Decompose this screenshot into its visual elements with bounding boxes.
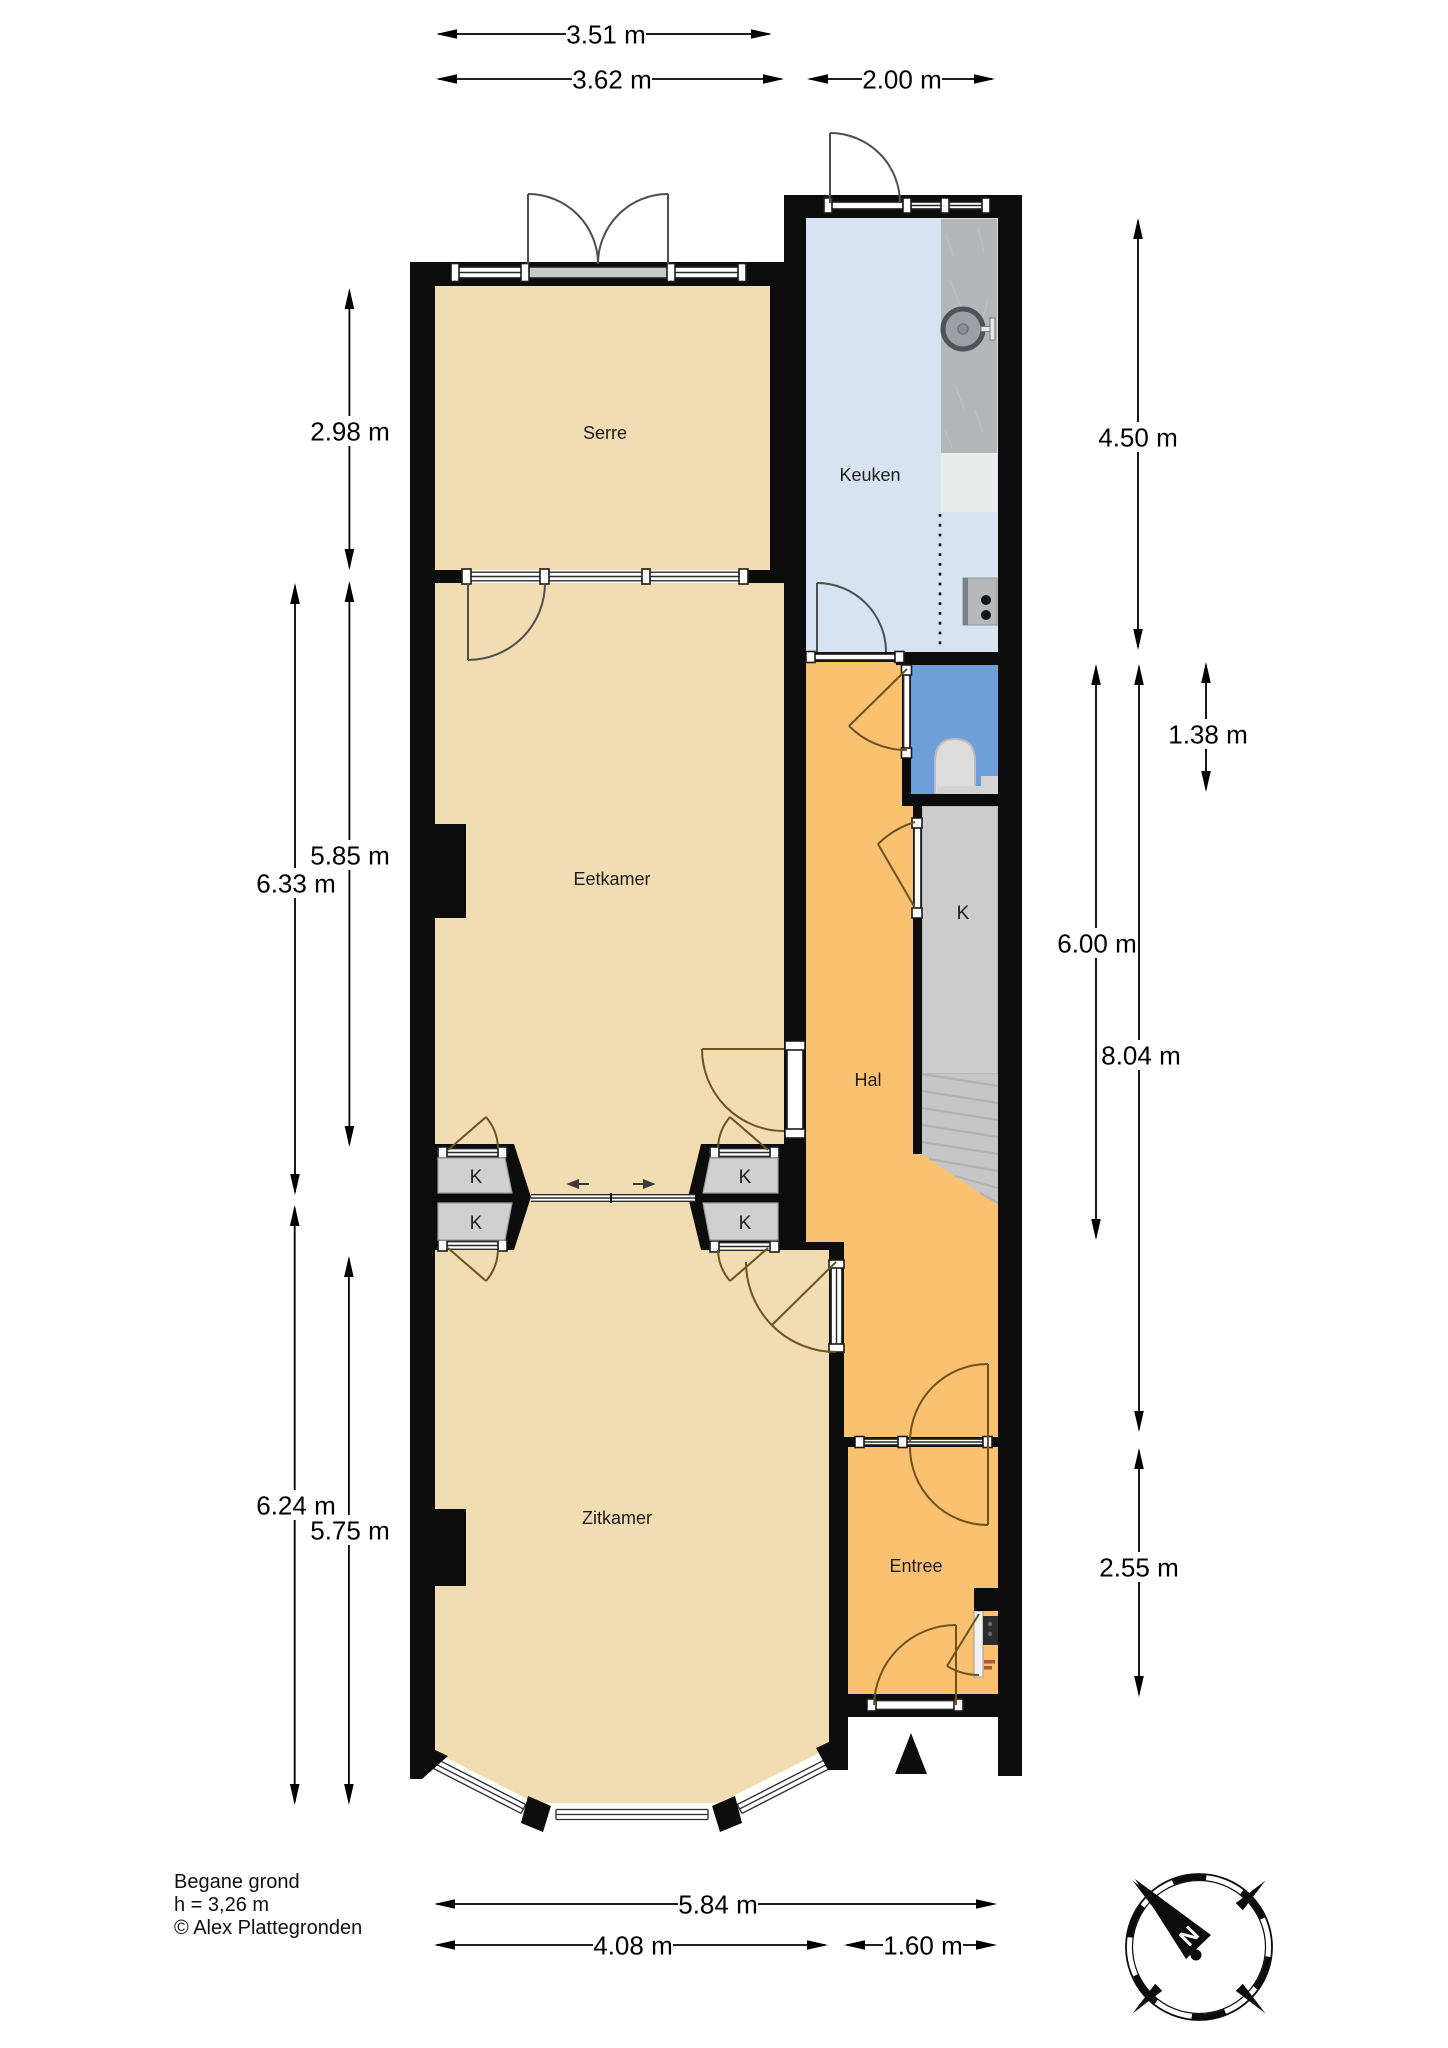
svg-text:h = 3,26 m: h = 3,26 m [174,1894,269,1916]
svg-text:Serre: Serre [583,423,627,443]
svg-text:Hal: Hal [854,1070,881,1090]
svg-text:K: K [470,1213,483,1234]
svg-text:6.33 m: 6.33 m [256,869,336,899]
svg-text:3.51 m: 3.51 m [566,20,646,50]
svg-text:K: K [470,1167,483,1188]
svg-text:1.38 m: 1.38 m [1168,720,1248,750]
svg-text:Zitkamer: Zitkamer [582,1508,652,1528]
svg-text:4.08 m: 4.08 m [593,1931,673,1961]
svg-text:Keuken: Keuken [839,465,900,485]
svg-text:Entree: Entree [889,1556,942,1576]
svg-text:2.00 m: 2.00 m [862,65,942,95]
svg-text:5.75 m: 5.75 m [310,1516,390,1546]
svg-text:2.55 m: 2.55 m [1099,1553,1179,1583]
svg-text:Eetkamer: Eetkamer [573,869,650,889]
svg-text:Begane grond: Begane grond [174,1871,300,1893]
svg-text:5.85 m: 5.85 m [310,841,390,871]
svg-text:K: K [739,1213,752,1234]
svg-text:© Alex Plattegronden: © Alex Plattegronden [174,1917,362,1939]
svg-text:4.50 m: 4.50 m [1098,423,1178,453]
svg-text:1.60 m: 1.60 m [883,1931,963,1961]
svg-text:8.04 m: 8.04 m [1101,1041,1181,1071]
svg-text:3.62 m: 3.62 m [572,65,652,95]
svg-text:K: K [957,903,970,924]
svg-text:5.84 m: 5.84 m [678,1890,758,1920]
svg-text:2.98 m: 2.98 m [310,417,390,447]
svg-text:6.00 m: 6.00 m [1057,929,1137,959]
svg-text:K: K [739,1167,752,1188]
